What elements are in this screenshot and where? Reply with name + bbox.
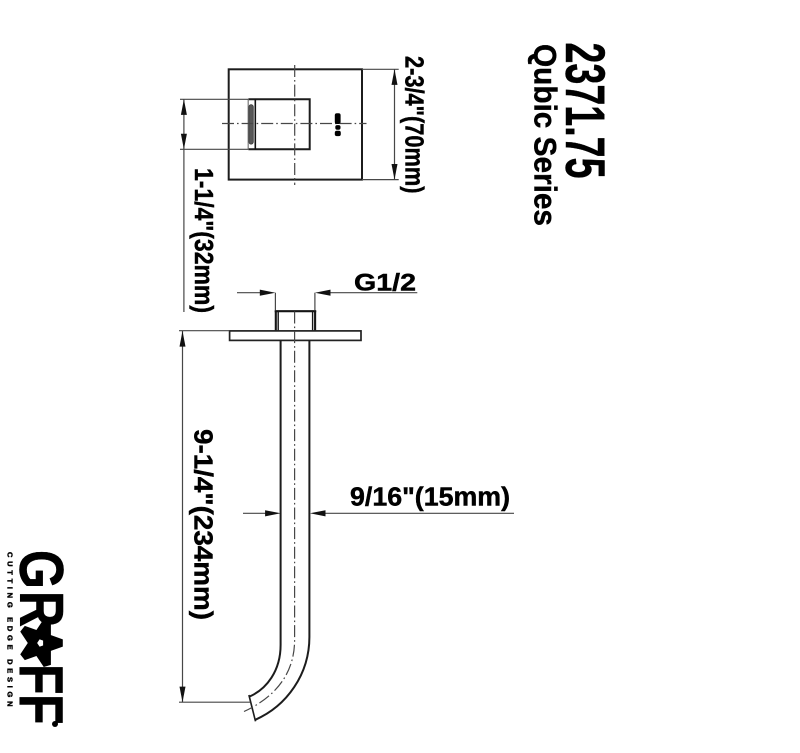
- svg-text:F: F: [7, 694, 77, 725]
- svg-text:9-1/4"(234mm): 9-1/4"(234mm): [189, 429, 217, 620]
- svg-text:F: F: [7, 664, 77, 695]
- svg-text:1-1/4"(32mm): 1-1/4"(32mm): [189, 168, 217, 313]
- svg-text:G1/2: G1/2: [354, 270, 416, 297]
- svg-text:CUTTING EDGE DESIGN: CUTTING EDGE DESIGN: [6, 552, 15, 709]
- svg-text:2-3/4"(70mm): 2-3/4"(70mm): [399, 56, 427, 194]
- svg-text:R: R: [7, 591, 77, 627]
- svg-text:G: G: [7, 550, 77, 589]
- svg-text:Qubic Series: Qubic Series: [528, 44, 564, 226]
- svg-text:9/16"(15mm): 9/16"(15mm): [350, 484, 510, 512]
